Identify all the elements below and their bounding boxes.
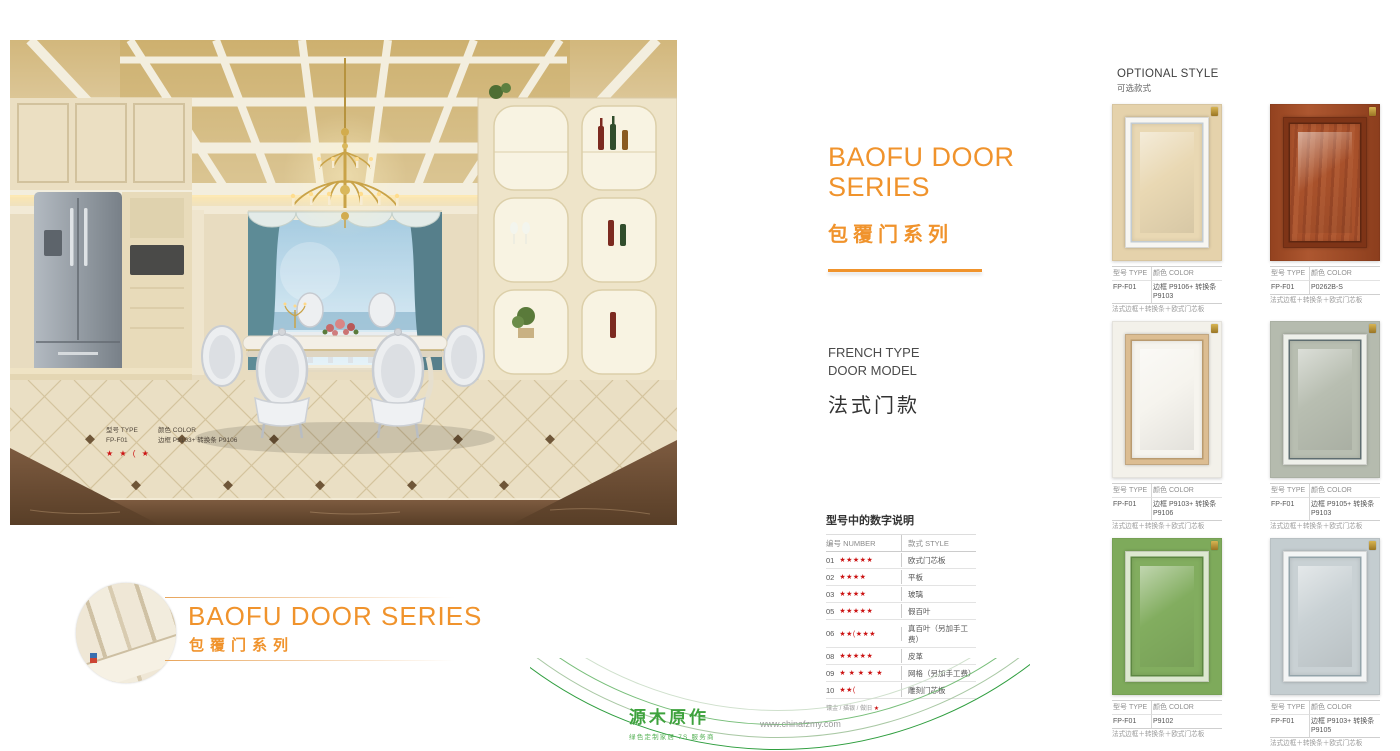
door-label: 型号 TYPE 颜色 COLOR FP-F01 P9102 法式边框＋转换条＋欧… — [1112, 700, 1222, 740]
photo-tag-type-label: 型号 TYPE — [106, 426, 158, 436]
door-card: 型号 TYPE 颜色 COLOR FP-F01 P0262B-S 法式边框＋转换… — [1270, 104, 1380, 315]
brand-emblem-icon — [1211, 541, 1218, 550]
watermark-arcs — [530, 658, 1030, 751]
door-swatch — [1112, 538, 1222, 695]
door-desc: 法式边框＋转换条＋欧式门芯板 — [1270, 521, 1380, 532]
stars: ★★★★ — [839, 573, 866, 581]
chair-back-left — [255, 329, 309, 439]
door-model: FP-F01 — [1270, 498, 1310, 521]
door-swatch — [1270, 104, 1380, 261]
brand-emblem-icon — [1369, 324, 1376, 333]
brand-emblem-icon — [1369, 107, 1376, 116]
door-desc: 法式边框＋转换条＋欧式门芯板 — [1112, 521, 1222, 532]
legend-row: 02★★★★ 平板 — [826, 569, 976, 586]
door-sample-grid: 型号 TYPE 颜色 COLOR FP-F01 边框 P9106+ 转换条 P9… — [1112, 104, 1380, 749]
optional-style-heading: OPTIONAL STYLE 可选款式 — [1117, 68, 1219, 94]
door-model: FP-F01 — [1112, 498, 1152, 521]
legend-row: 03★★★★ 玻璃 — [826, 586, 976, 603]
legend-row: 01★★★★★ 欧式门芯板 — [826, 552, 976, 569]
door-color: 边框 P9106+ 转换条 P9103 — [1152, 281, 1222, 304]
stars: ★★★★★ — [839, 607, 873, 615]
door-model: FP-F01 — [1270, 281, 1310, 295]
chair-back-right — [371, 329, 425, 439]
brand-tagline: 绿色定制家居 7S 服务商 — [629, 731, 715, 741]
door-card: 型号 TYPE 颜色 COLOR FP-F01 边框 P9103+ 转换条 P9… — [1270, 538, 1380, 749]
door-color: 边框 P9105+ 转换条 P9103 — [1310, 498, 1380, 521]
door-color: P9102 — [1152, 715, 1222, 729]
door-swatch — [1112, 104, 1222, 261]
photo-tag-model: FP-F01 — [106, 436, 158, 446]
door-desc: 法式边框＋转换条＋欧式门芯板 — [1112, 729, 1222, 740]
series-headline: BAOFU DOOR SERIES 包覆门系列 — [828, 142, 1015, 272]
door-label: 型号 TYPE 颜色 COLOR FP-F01 边框 P9106+ 转换条 P9… — [1112, 266, 1222, 315]
stars: ★★(★★★ — [839, 630, 876, 638]
photo-tag-color-value: 边框 P9103+ 转换条 P9106 — [158, 436, 276, 446]
door-swatch — [1270, 538, 1380, 695]
footer-series-title-cn: 包覆门系列 — [189, 634, 294, 655]
door-swatch — [1112, 321, 1222, 478]
legend-title: 型号中的数字说明 — [826, 512, 976, 528]
door-label: 型号 TYPE 颜色 COLOR FP-F01 边框 P9103+ 转换条 P9… — [1112, 483, 1222, 532]
stars: ★★★★★ — [839, 556, 873, 564]
brand-logo: 源木原作 绿色定制家居 7S 服务商 — [629, 703, 715, 741]
door-desc: 法式边框＋转换条＋欧式门芯板 — [1270, 738, 1380, 749]
series-title-cn: 包覆门系列 — [828, 218, 1015, 247]
door-card: 型号 TYPE 颜色 COLOR FP-F01 边框 P9105+ 转换条 P9… — [1270, 321, 1380, 532]
brand-website: www.chinafzmy.com — [760, 719, 841, 729]
door-card: 型号 TYPE 颜色 COLOR FP-F01 边框 P9106+ 转换条 P9… — [1112, 104, 1222, 315]
photo-tag-color-label: 颜色 COLOR — [158, 426, 276, 436]
footer-series-title: BAOFU DOOR SERIES — [188, 601, 482, 632]
cabinet-thumbnail — [76, 583, 176, 683]
door-model: FP-F01 — [1270, 715, 1310, 738]
badge-rule-top — [165, 597, 455, 598]
door-desc: 法式边框＋转换条＋欧式门芯板 — [1112, 304, 1222, 315]
showroom-photo: 型号 TYPE 颜色 COLOR FP-F01 边框 P9103+ 转换条 P9… — [10, 40, 677, 525]
series-title: BAOFU DOOR SERIES — [828, 142, 1015, 202]
door-color: 边框 P9103+ 转换条 P9105 — [1310, 715, 1380, 738]
photo-tag-stars: ★ ★ ( ★ — [106, 448, 276, 460]
door-label: 型号 TYPE 颜色 COLOR FP-F01 边框 P9103+ 转换条 P9… — [1270, 700, 1380, 749]
door-label: 型号 TYPE 颜色 COLOR FP-F01 边框 P9105+ 转换条 P9… — [1270, 483, 1380, 532]
photo-spec-tag: 型号 TYPE 颜色 COLOR FP-F01 边框 P9103+ 转换条 P9… — [106, 426, 276, 460]
door-desc: 法式边框＋转换条＋欧式门芯板 — [1270, 295, 1380, 306]
section-title-cn: 法式门款 — [828, 389, 920, 418]
section-title-en: FRENCH TYPE DOOR MODEL — [828, 344, 920, 380]
stars: ★★★★ — [839, 590, 866, 598]
legend-header-row: 编号 NUMBER 款式 STYLE — [826, 534, 976, 552]
brand-name: 源木原作 — [629, 703, 715, 728]
brand-emblem-icon — [1369, 541, 1376, 550]
badge-rule-bottom — [165, 660, 455, 661]
door-card: 型号 TYPE 颜色 COLOR FP-F01 边框 P9103+ 转换条 P9… — [1112, 321, 1222, 532]
legend-row: 06★★(★★★ 真百叶（另加手工费） — [826, 620, 976, 648]
door-label: 型号 TYPE 颜色 COLOR FP-F01 P0262B-S 法式边框＋转换… — [1270, 266, 1380, 306]
legend-row: 05★★★★★ 假百叶 — [826, 603, 976, 620]
catalog-page: 型号 TYPE 颜色 COLOR FP-F01 边框 P9103+ 转换条 P9… — [0, 0, 1400, 751]
door-model: FP-F01 — [1112, 715, 1152, 729]
accent-rule — [828, 269, 982, 272]
section-title: FRENCH TYPE DOOR MODEL 法式门款 — [828, 344, 920, 418]
brand-emblem-icon — [1211, 324, 1218, 333]
door-color: 边框 P9103+ 转换条 P9106 — [1152, 498, 1222, 521]
brand-emblem-icon — [1211, 107, 1218, 116]
door-model: FP-F01 — [1112, 281, 1152, 304]
door-card: 型号 TYPE 颜色 COLOR FP-F01 P9102 法式边框＋转换条＋欧… — [1112, 538, 1222, 749]
door-swatch — [1270, 321, 1380, 478]
door-color: P0262B-S — [1310, 281, 1380, 295]
